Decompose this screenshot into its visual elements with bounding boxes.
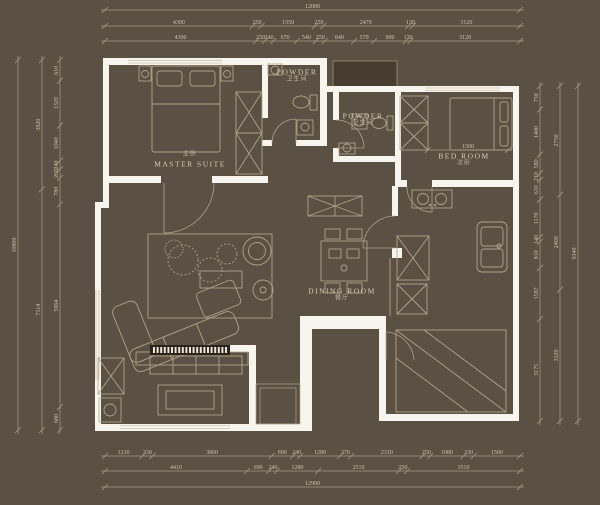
room-name: MASTER SUITE: [154, 159, 226, 168]
master-nightstands: [139, 66, 233, 81]
dimension-label: 570: [360, 35, 369, 41]
dining-table: [321, 229, 367, 293]
dimension-label: 540: [302, 35, 311, 41]
dimension-label: 250: [316, 35, 325, 41]
master-wardrobe: [236, 92, 262, 174]
walls: [95, 58, 519, 431]
dimension-label: 3120: [460, 20, 472, 26]
dimension-label: 9340: [572, 248, 578, 260]
dimension-label: 210: [534, 172, 540, 181]
dimension-label: 1550: [282, 20, 294, 26]
dimension-label: 240: [269, 465, 278, 471]
coffee-table: [200, 271, 242, 288]
dimension-label: 1280: [292, 465, 304, 471]
dimension-label: 140: [534, 235, 540, 244]
dimension-label: 3175: [534, 364, 540, 376]
dimension-label: 330: [143, 450, 152, 456]
room-name: BED ROOM: [438, 152, 489, 161]
dimension-label: 1320: [54, 97, 60, 109]
dimension-label: 250: [315, 20, 324, 26]
dimension-label: 3820: [36, 119, 42, 131]
dimension-label: 370: [341, 450, 350, 456]
dimension-label: 3120: [459, 35, 471, 41]
dimension-label: 3860: [206, 450, 218, 456]
room-label-bed-room: BED ROOM次卧: [438, 152, 489, 169]
dimension-label: 690: [278, 450, 287, 456]
dimension-label: 690: [254, 465, 263, 471]
dimension-label: 2400: [554, 236, 560, 248]
window-lines: [96, 60, 500, 428]
bedroom-bed: [450, 98, 512, 150]
dimension-label: 5964: [54, 300, 60, 312]
dimension-label: 2510: [353, 465, 365, 471]
bedroom-wardrobe: [400, 96, 428, 150]
dimension-label: 330: [464, 450, 473, 456]
dimension-label: 1040: [54, 137, 60, 149]
dimension-label: 840: [335, 35, 344, 41]
dimension-label: 4300: [173, 20, 185, 26]
room-name: POWDER: [277, 68, 318, 77]
room-subtitle: 卫生间: [343, 121, 384, 129]
balcony: [256, 384, 300, 424]
dimension-label: 2310: [381, 450, 393, 456]
armchair: [243, 237, 271, 265]
dimension-label: 250: [422, 450, 431, 456]
master-bed: [152, 66, 220, 152]
dimension-label: 12000: [305, 4, 320, 10]
room-label-dining-room: DINING ROOM餐厅: [308, 287, 376, 304]
dimension-label: 810: [534, 250, 540, 259]
dimension-label: 730: [534, 93, 540, 102]
dimension-label: 130: [406, 20, 415, 26]
dimension-label: 680: [54, 414, 60, 423]
dimension-label: 240: [292, 450, 301, 456]
hall-cabinet: [397, 284, 427, 314]
dimension-label: 1210: [118, 450, 130, 456]
dimension-label: 240: [265, 35, 274, 41]
room-subtitle: 主卧: [154, 152, 226, 160]
dimension-label: 900: [385, 35, 394, 41]
dimension-label: 12900: [305, 481, 320, 487]
dark-shaft-block: [333, 61, 397, 87]
dimension-label: 1400: [534, 126, 540, 138]
second-bed: [396, 330, 506, 412]
divider-cabinet: [308, 196, 362, 216]
room-label-powder: POWDER卫生间: [277, 68, 318, 85]
side-table: [253, 280, 273, 300]
dimension-label: 1080: [441, 450, 453, 456]
dimension-label: 3320: [554, 349, 560, 361]
dimension-label: 2750: [554, 134, 560, 146]
dimension-label: 780: [54, 187, 60, 196]
dimension-label: 240: [54, 160, 60, 169]
dimension-label: 670: [281, 35, 290, 41]
room-label-master-suite: 主卧MASTER SUITE: [154, 152, 226, 169]
room-subtitle: 次卧: [438, 161, 489, 169]
room-name: POWDER: [343, 112, 384, 121]
dimension-label: 250: [253, 20, 262, 26]
room-subtitle: 餐厅: [308, 296, 376, 304]
dimension-label: 1170: [534, 213, 540, 225]
dimension-label: 260: [54, 169, 60, 178]
dimension-label: 1280: [314, 450, 326, 456]
room-subtitle: 卫生间: [277, 77, 318, 85]
dimension-label: 1587: [534, 287, 540, 299]
dimension-label: 2470: [360, 20, 372, 26]
living-rug: [148, 234, 272, 318]
dimension-label: 4300: [175, 35, 187, 41]
dimension-label: 7114: [36, 304, 42, 316]
dimension-label: 580: [534, 159, 540, 168]
dimension-label: 610: [534, 185, 540, 194]
dimension-label: 4410: [170, 465, 182, 471]
floor-plan: 1200043002501550250247013031204300250240…: [0, 0, 600, 505]
dimension-label: 10800: [12, 238, 18, 253]
room-label-powder: POWDER卫生间: [343, 112, 384, 129]
dimension-label: 250: [398, 465, 407, 471]
dimension-label: 130: [404, 35, 413, 41]
study-furniture: [98, 356, 242, 422]
dimension-label: 1500: [491, 450, 503, 456]
dimension-label: 3510: [457, 465, 469, 471]
dimension-label: 610: [54, 66, 60, 75]
dimension-label: 1500: [462, 144, 474, 150]
kitchen-sink: [477, 222, 507, 272]
room-name: DINING ROOM: [308, 287, 376, 296]
